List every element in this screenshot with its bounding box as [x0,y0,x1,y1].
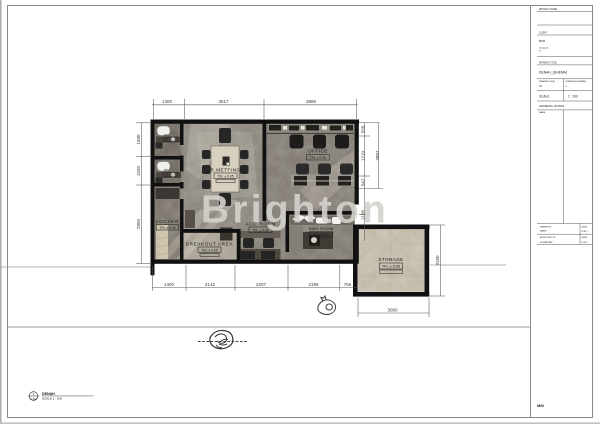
svg-text:BIDW: BIDW [539,41,546,43]
svg-text:NAME: NAME [540,230,547,233]
svg-text:APPROVED BY: APPROVED BY [540,236,556,239]
svg-text:WC: WC [164,168,168,172]
svg-text:BREAKOUT AREA: BREAKOUT AREA [186,242,233,247]
svg-text:1300: 1300 [162,99,173,104]
svg-text:DATE: DATE [582,226,588,229]
svg-text:DRAWING SIZE: DRAWING SIZE [539,80,556,83]
svg-text:PROJECT NAME: PROJECT NAME [539,8,557,11]
svg-text:3150: 3150 [435,255,440,266]
svg-text:1 : 100: 1 : 100 [568,95,578,99]
svg-text:2196: 2196 [308,282,319,287]
svg-text:NAME: NAME [539,111,546,114]
svg-text:WC: WC [164,133,168,137]
svg-text:A-101: A-101 [30,398,37,401]
svg-text:for: for [539,50,542,53]
svg-text:TFL ± 0.05: TFL ± 0.05 [310,156,326,160]
svg-text:3517: 3517 [218,99,229,104]
svg-text:DRAWING NUMBER: DRAWING NUMBER [566,80,587,83]
svg-text:1550: 1550 [136,165,141,176]
svg-text:TFL ± 0.05: TFL ± 0.05 [159,226,175,230]
svg-text:LOCKER: LOCKER [156,219,179,224]
svg-text:TFL ± 0.05: TFL ± 0.05 [217,174,233,178]
svg-text:2207: 2207 [256,282,267,287]
svg-text:547: 547 [360,178,365,186]
svg-text:3000: 3000 [387,308,398,313]
svg-text:SCALE: SCALE [539,95,549,99]
svg-text:M M Y: M M Y [582,242,589,244]
svg-text:Brighton: Brighton [201,189,389,232]
svg-text:MM: MM [537,403,544,408]
svg-text:M M Y: M M Y [582,231,589,233]
svg-text:2142: 2142 [205,282,216,287]
svg-text:1400: 1400 [164,282,175,287]
svg-text:1500: 1500 [136,134,141,145]
svg-text:2807: 2807 [375,150,380,161]
svg-text:2850: 2850 [136,218,141,229]
svg-text:DATE: DATE [582,236,588,239]
svg-text:TFL ± 0.05: TFL ± 0.05 [313,233,329,237]
svg-text:R.METTING: R.METTING [210,168,240,173]
svg-text:SCALE 1 : 100: SCALE 1 : 100 [42,397,62,401]
svg-text:DRAWN BY: DRAWN BY [540,226,552,229]
svg-text:Designed: Designed [539,48,549,50]
svg-text:550: 550 [360,125,365,133]
svg-text:DENAH_(SHEMA): DENAH_(SHEMA) [539,71,567,75]
svg-text:756: 756 [344,282,352,287]
svg-text:CLIENT: CLIENT [539,33,548,35]
svg-text:TFL ± 0.05: TFL ± 0.05 [165,140,176,142]
svg-text:DRAWING TITLE: DRAWING TITLE [539,62,557,65]
svg-text:OFFICE: OFFICE [308,149,328,154]
svg-text:3885: 3885 [306,99,317,104]
svg-text:1710: 1710 [360,150,365,161]
svg-text:TFL ± 0.05: TFL ± 0.05 [201,248,217,252]
svg-text:STORAGE: STORAGE [378,257,403,262]
svg-text:1: 1 [33,392,35,396]
svg-text:TFL ± 0.05: TFL ± 0.05 [165,175,176,177]
svg-text:TFL ± 0.05: TFL ± 0.05 [382,265,400,269]
svg-text:SIGNATURE: SIGNATURE [540,241,553,244]
svg-text:GENERAL NOTES: GENERAL NOTES [539,104,564,108]
